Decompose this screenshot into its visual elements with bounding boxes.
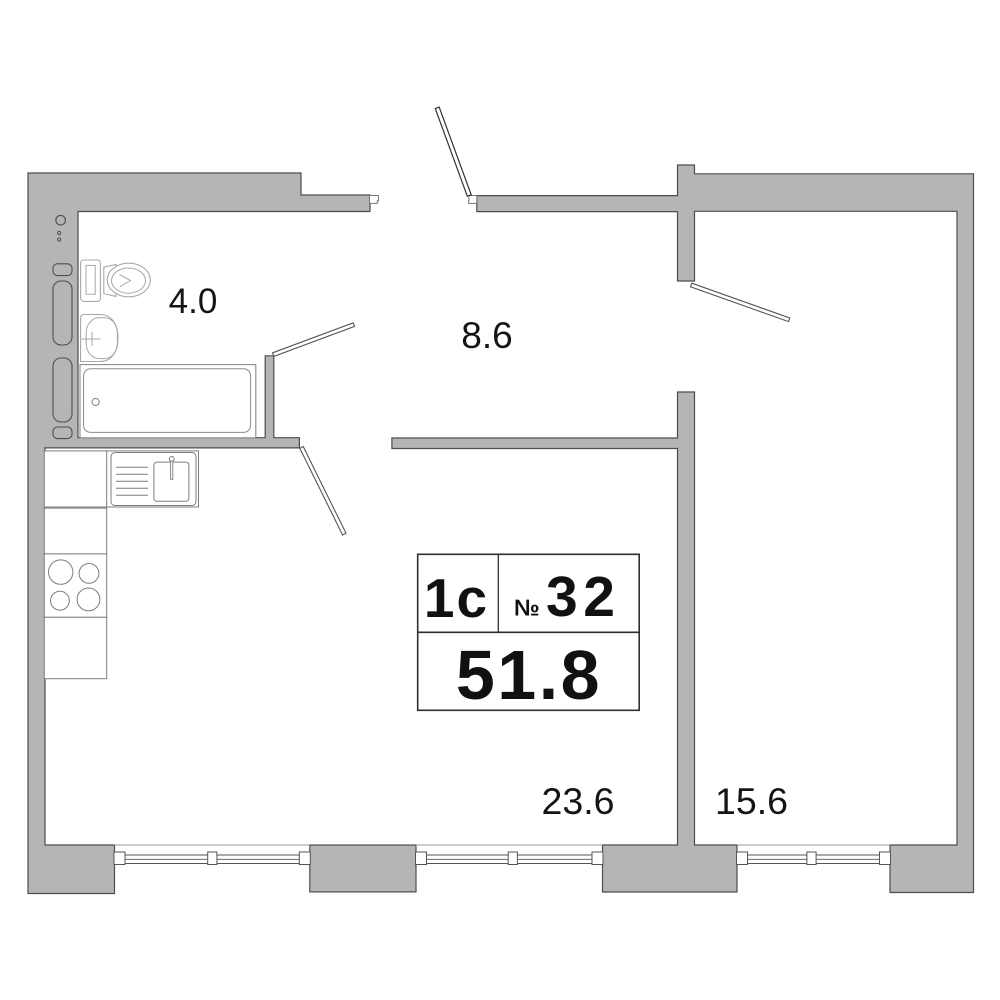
svg-text:23.6: 23.6 [542,780,615,822]
svg-text:1c: 1c [424,567,489,629]
svg-text:15.6: 15.6 [715,780,788,822]
svg-text:32: 32 [546,565,620,629]
svg-text:51.8: 51.8 [456,636,602,714]
svg-text:8.6: 8.6 [461,315,512,356]
svg-text:4.0: 4.0 [169,282,218,321]
svg-text:№: № [514,595,540,621]
